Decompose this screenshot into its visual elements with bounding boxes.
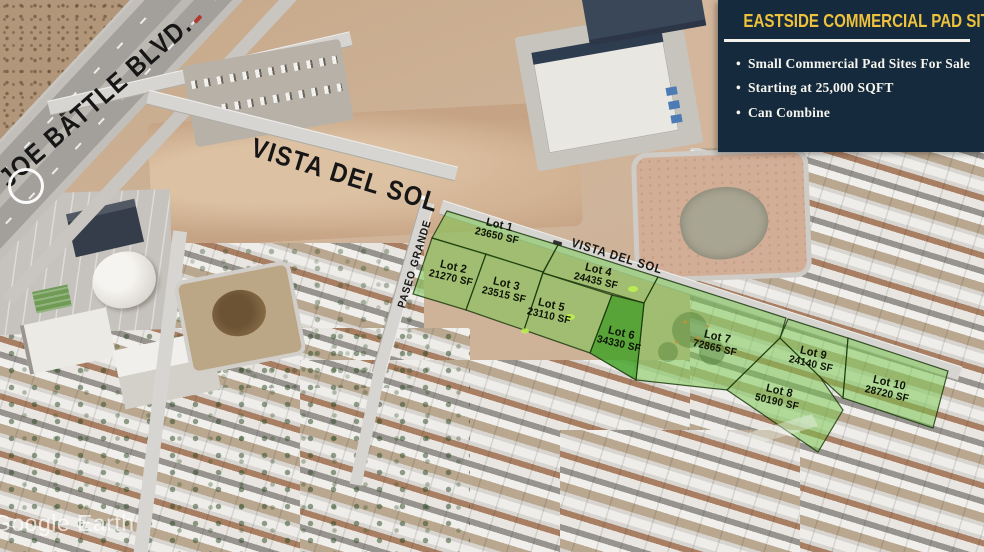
bullet-text: Small Commercial Pad Sites For Sale [748, 56, 970, 71]
panel-title: EASTSIDE COMMERCIAL PAD SITES [743, 11, 984, 32]
panel-bullet-item: •Starting at 25,000 SQFT [736, 80, 976, 96]
bullet-icon: • [736, 80, 741, 95]
bullet-text: Starting at 25,000 SQFT [748, 80, 894, 95]
panel-bullet-list: •Small Commercial Pad Sites For Sale •St… [718, 56, 984, 121]
info-panel: EASTSIDE COMMERCIAL PAD SITES •Small Com… [718, 0, 984, 152]
bullet-icon: • [736, 56, 741, 71]
google-earth-watermark: Google Earth [0, 510, 135, 537]
highlight-ring [8, 168, 44, 204]
panel-bullet-item: •Can Combine [736, 105, 976, 121]
bullet-icon: • [736, 105, 741, 120]
aerial-map: Lot 1 23650 SF Lot 2 21270 SF Lot 3 2351… [0, 0, 984, 552]
panel-bullet-item: •Small Commercial Pad Sites For Sale [736, 56, 976, 72]
panel-divider [724, 39, 970, 42]
panel-title-wrap: EASTSIDE COMMERCIAL PAD SITES [718, 11, 984, 32]
bullet-text: Can Combine [748, 105, 830, 120]
